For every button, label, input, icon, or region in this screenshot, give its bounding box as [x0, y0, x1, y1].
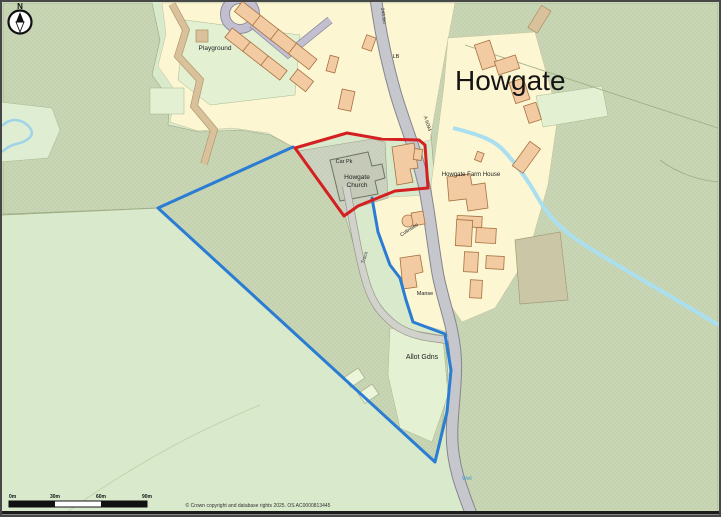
manse-label: Manse: [417, 291, 434, 297]
well-label: Well: [462, 476, 472, 482]
copyright-notice: © Crown copyright and database rights 20…: [186, 502, 331, 509]
scale-bar-segment: [9, 501, 55, 507]
scale-bar-segment: [101, 501, 147, 507]
church-label-line1: Howgate: [344, 174, 370, 181]
bottom-bar: [0, 511, 721, 515]
compass-north-label: N: [17, 2, 23, 11]
house: [463, 252, 478, 273]
car-park-label: Car Pk: [336, 159, 353, 165]
outbuilding: [413, 148, 422, 160]
house: [486, 256, 505, 270]
scale-tick-30: 30m: [50, 494, 61, 500]
house: [455, 220, 472, 247]
scale-tick-60: 60m: [96, 494, 107, 500]
house: [476, 227, 497, 243]
playground-label: Playground: [199, 45, 232, 52]
map-canvas: Howgate Playground Car Pk Howgate Church…: [0, 0, 721, 517]
allotments-label: Allot Gdns: [406, 354, 439, 361]
scale-tick-0: 0m: [9, 494, 17, 500]
letter-box-label: LB: [393, 54, 400, 60]
playground-shed: [196, 30, 208, 42]
garden-parcel: [150, 88, 184, 114]
church-label-line2: Church: [347, 182, 368, 189]
farm-house-label: Howgate Farm House: [442, 172, 501, 178]
courtyard: [515, 232, 568, 304]
ordnance-map: Howgate Playground Car Pk Howgate Church…: [0, 0, 721, 517]
map-title: Howgate: [455, 65, 566, 96]
house: [470, 280, 483, 299]
scale-tick-90: 90m: [142, 494, 153, 500]
